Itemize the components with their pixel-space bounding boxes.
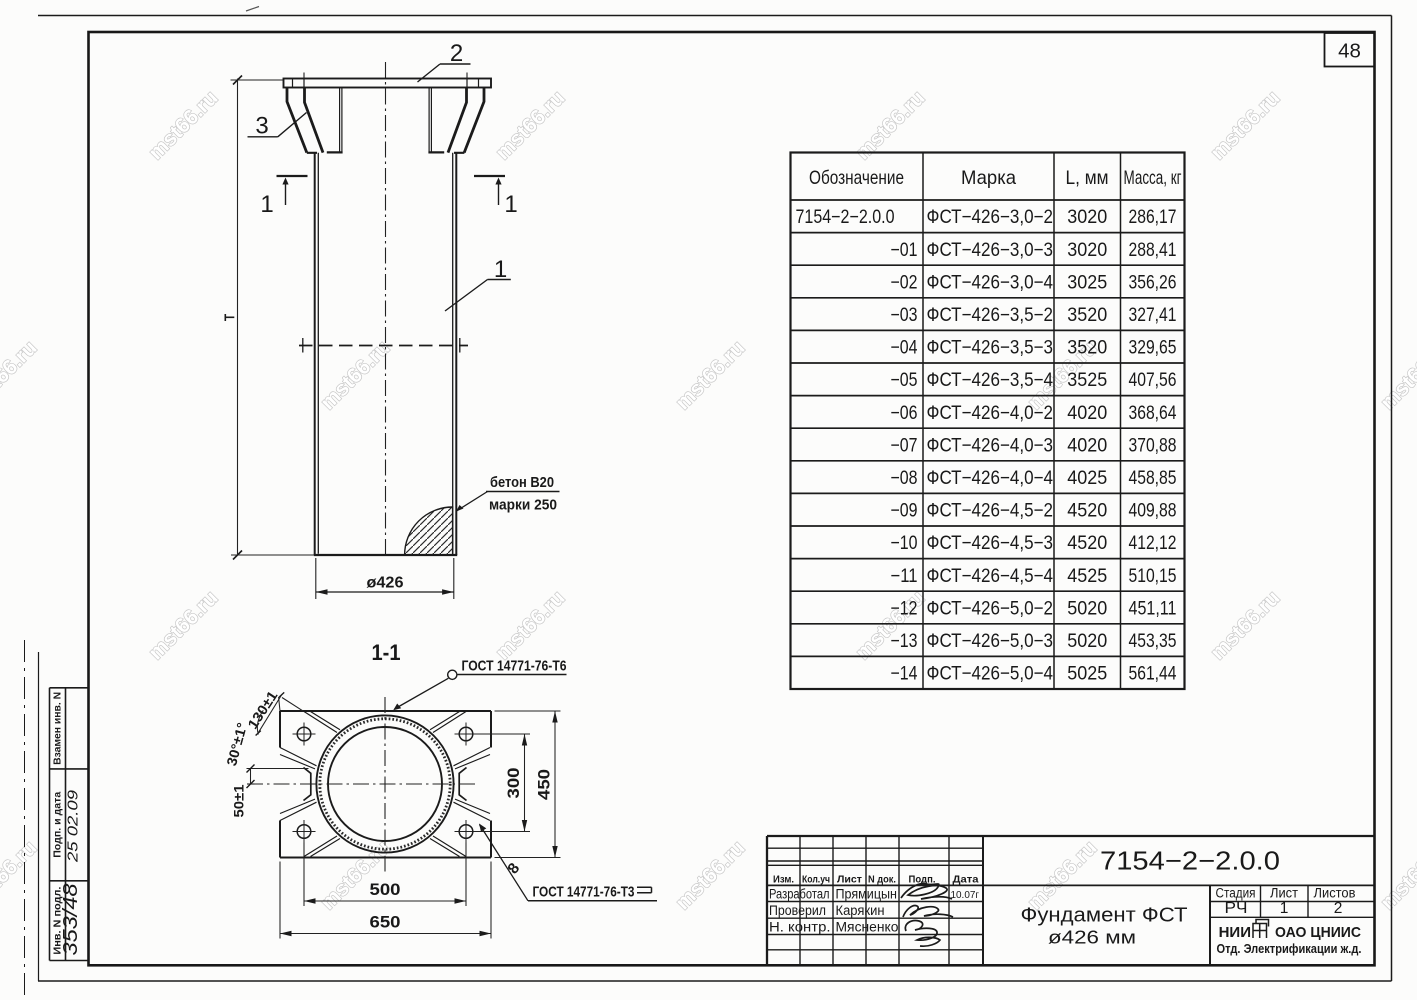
svg-text:mst66.ru: mst66.ru [1376, 336, 1417, 414]
svg-text:Фундамент ФСТ: Фундамент ФСТ [1021, 904, 1189, 927]
svg-text:25 02.09: 25 02.09 [65, 789, 82, 863]
svg-text:−01: −01 [891, 239, 918, 261]
svg-text:ФСТ−426−3,0−3: ФСТ−426−3,0−3 [927, 239, 1054, 261]
svg-text:ФСТ−426−4,0−4: ФСТ−426−4,0−4 [927, 467, 1054, 489]
svg-text:2: 2 [1334, 900, 1343, 917]
svg-text:4020: 4020 [1067, 402, 1107, 424]
svg-text:453,35: 453,35 [1129, 630, 1177, 652]
svg-text:561,44: 561,44 [1129, 663, 1177, 685]
svg-text:5020: 5020 [1067, 630, 1107, 652]
svg-text:L, мм: L, мм [1066, 167, 1109, 189]
svg-text:mst66.ru: mst66.ru [144, 86, 222, 164]
svg-text:Стадия: Стадия [1216, 886, 1256, 901]
svg-text:7154−2−2.0.0: 7154−2−2.0.0 [1100, 846, 1280, 876]
svg-text:−09: −09 [891, 500, 918, 522]
svg-text:−10: −10 [891, 532, 918, 554]
svg-text:ФСТ−426−3,0−4: ФСТ−426−3,0−4 [927, 271, 1054, 293]
svg-text:mst66.ru: mst66.ru [671, 836, 749, 914]
svg-text:mst66.ru: mst66.ru [491, 586, 569, 664]
svg-text:3520: 3520 [1067, 304, 1107, 326]
svg-text:−07: −07 [891, 434, 918, 456]
svg-text:ФСТ−426−3,5−4: ФСТ−426−3,5−4 [927, 369, 1054, 391]
svg-text:286,17: 286,17 [1129, 206, 1177, 228]
svg-text:−04: −04 [891, 337, 918, 359]
svg-text:mst66.ru: mst66.ru [671, 336, 749, 414]
svg-text:3: 3 [255, 113, 268, 140]
svg-text:7154−2−2.0.0: 7154−2−2.0.0 [796, 206, 895, 228]
svg-text:329,65: 329,65 [1129, 337, 1177, 359]
svg-text:Прямицын: Прямицын [836, 886, 898, 901]
svg-text:mst66.ru: mst66.ru [144, 586, 222, 664]
svg-text:НИИ: НИИ [1219, 924, 1251, 941]
svg-text:1-1: 1-1 [372, 640, 401, 665]
svg-text:368,64: 368,64 [1129, 402, 1177, 424]
svg-text:бетон В20: бетон В20 [490, 474, 554, 491]
svg-text:mst66.ru: mst66.ru [1206, 86, 1284, 164]
svg-text:ФСТ−426−3,5−3: ФСТ−426−3,5−3 [927, 337, 1054, 359]
svg-text:1: 1 [504, 191, 517, 218]
svg-text:370,88: 370,88 [1129, 434, 1177, 456]
svg-text:−02: −02 [891, 271, 918, 293]
svg-text:Подп. и дата: Подп. и дата [53, 791, 64, 857]
svg-text:ø426: ø426 [367, 575, 404, 592]
svg-text:Дата: Дата [953, 874, 979, 886]
svg-text:Обозначение: Обозначение [809, 167, 904, 189]
svg-text:Лист: Лист [837, 874, 862, 886]
svg-text:N док.: N док. [868, 874, 896, 886]
svg-text:10.07г: 10.07г [951, 889, 980, 901]
svg-text:4520: 4520 [1067, 500, 1107, 522]
svg-text:РЧ: РЧ [1225, 900, 1248, 917]
svg-text:ГОСТ 14771-76-Т3: ГОСТ 14771-76-Т3 [533, 884, 635, 901]
svg-text:ФСТ−426−3,0−2: ФСТ−426−3,0−2 [927, 206, 1054, 228]
svg-text:ГОСТ 14771-76-Т6: ГОСТ 14771-76-Т6 [462, 658, 567, 675]
svg-text:Проверил: Проверил [769, 903, 826, 918]
svg-text:5025: 5025 [1067, 663, 1107, 685]
svg-text:Разработал: Разработал [769, 886, 830, 901]
svg-text:30°±1°: 30°±1° [223, 721, 250, 768]
svg-text:3520: 3520 [1067, 337, 1107, 359]
svg-text:50±1: 50±1 [231, 784, 247, 817]
svg-text:4525: 4525 [1067, 565, 1107, 587]
svg-text:458,85: 458,85 [1129, 467, 1177, 489]
svg-text:−08: −08 [891, 467, 918, 489]
svg-text:mst66.ru: mst66.ru [1206, 586, 1284, 664]
svg-text:Карякин: Карякин [836, 903, 885, 918]
svg-text:Изм.: Изм. [773, 874, 794, 886]
svg-text:3020: 3020 [1067, 239, 1107, 261]
svg-text:3525: 3525 [1067, 369, 1107, 391]
svg-text:−05: −05 [891, 369, 918, 391]
svg-text:марки 250: марки 250 [489, 497, 557, 514]
svg-text:500: 500 [370, 880, 401, 899]
svg-text:−13: −13 [891, 630, 918, 652]
svg-text:450: 450 [535, 769, 554, 800]
svg-text:−14: −14 [891, 663, 918, 685]
svg-text:ФСТ−426−5,0−3: ФСТ−426−5,0−3 [927, 630, 1054, 652]
svg-text:48: 48 [1338, 40, 1361, 63]
svg-text:407,56: 407,56 [1129, 369, 1177, 391]
svg-text:Отд. Электрификации ж.д.: Отд. Электрификации ж.д. [1217, 941, 1362, 956]
svg-text:353/48: 353/48 [60, 884, 82, 956]
svg-text:ФСТ−426−5,0−2: ФСТ−426−5,0−2 [927, 597, 1054, 619]
svg-text:−03: −03 [891, 304, 918, 326]
svg-text:327,41: 327,41 [1129, 304, 1177, 326]
svg-text:Лист: Лист [1270, 886, 1298, 901]
svg-text:3025: 3025 [1067, 271, 1107, 293]
svg-text:mst66.ru: mst66.ru [316, 336, 394, 414]
svg-text:Кол.уч: Кол.уч [802, 874, 830, 886]
svg-text:−12: −12 [891, 597, 918, 619]
svg-text:mst66.ru: mst66.ru [491, 86, 569, 164]
svg-text:510,15: 510,15 [1129, 565, 1177, 587]
svg-text:288,41: 288,41 [1129, 239, 1177, 261]
svg-text:ФСТ−426−4,5−4: ФСТ−426−4,5−4 [927, 565, 1054, 587]
svg-text:Марка: Марка [961, 167, 1016, 189]
svg-text:mst66.ru: mst66.ru [0, 336, 41, 414]
svg-text:409,88: 409,88 [1129, 500, 1177, 522]
svg-text:8: 8 [505, 860, 524, 878]
svg-text:4020: 4020 [1067, 434, 1107, 456]
svg-text:mst66.ru: mst66.ru [1376, 836, 1417, 914]
svg-text:Мясненко: Мясненко [836, 919, 899, 934]
svg-text:Н. контр.: Н. контр. [769, 919, 831, 934]
svg-text:3020: 3020 [1067, 206, 1107, 228]
svg-text:ФСТ−426−4,5−3: ФСТ−426−4,5−3 [927, 532, 1054, 554]
svg-text:mst66.ru: mst66.ru [0, 836, 41, 914]
svg-text:451,11: 451,11 [1129, 597, 1177, 619]
svg-text:Масса, кг: Масса, кг [1124, 167, 1182, 189]
svg-text:ФСТ−426−4,0−3: ФСТ−426−4,0−3 [927, 434, 1054, 456]
svg-text:−06: −06 [891, 402, 918, 424]
svg-text:356,26: 356,26 [1129, 271, 1177, 293]
svg-text:Взамен инв. N: Взамен инв. N [53, 692, 64, 765]
svg-text:ø426 мм: ø426 мм [1048, 928, 1136, 948]
svg-text:2: 2 [450, 40, 463, 67]
svg-text:ФСТ−426−3,5−2: ФСТ−426−3,5−2 [927, 304, 1054, 326]
svg-text:5020: 5020 [1067, 597, 1107, 619]
svg-text:ФСТ−426−4,5−2: ФСТ−426−4,5−2 [927, 500, 1054, 522]
svg-text:1: 1 [1280, 900, 1289, 917]
svg-text:ОАО ЦНИИС: ОАО ЦНИИС [1275, 924, 1361, 941]
svg-text:650: 650 [370, 913, 401, 932]
svg-text:1: 1 [260, 191, 273, 218]
svg-text:ФСТ−426−5,0−4: ФСТ−426−5,0−4 [927, 663, 1054, 685]
svg-text:Листов: Листов [1314, 886, 1356, 901]
svg-text:ФСТ−426−4,0−2: ФСТ−426−4,0−2 [927, 402, 1054, 424]
svg-text:4520: 4520 [1067, 532, 1107, 554]
svg-text:−11: −11 [891, 565, 918, 587]
svg-text:412,12: 412,12 [1129, 532, 1177, 554]
svg-text:300: 300 [504, 768, 523, 799]
svg-text:4025: 4025 [1067, 467, 1107, 489]
